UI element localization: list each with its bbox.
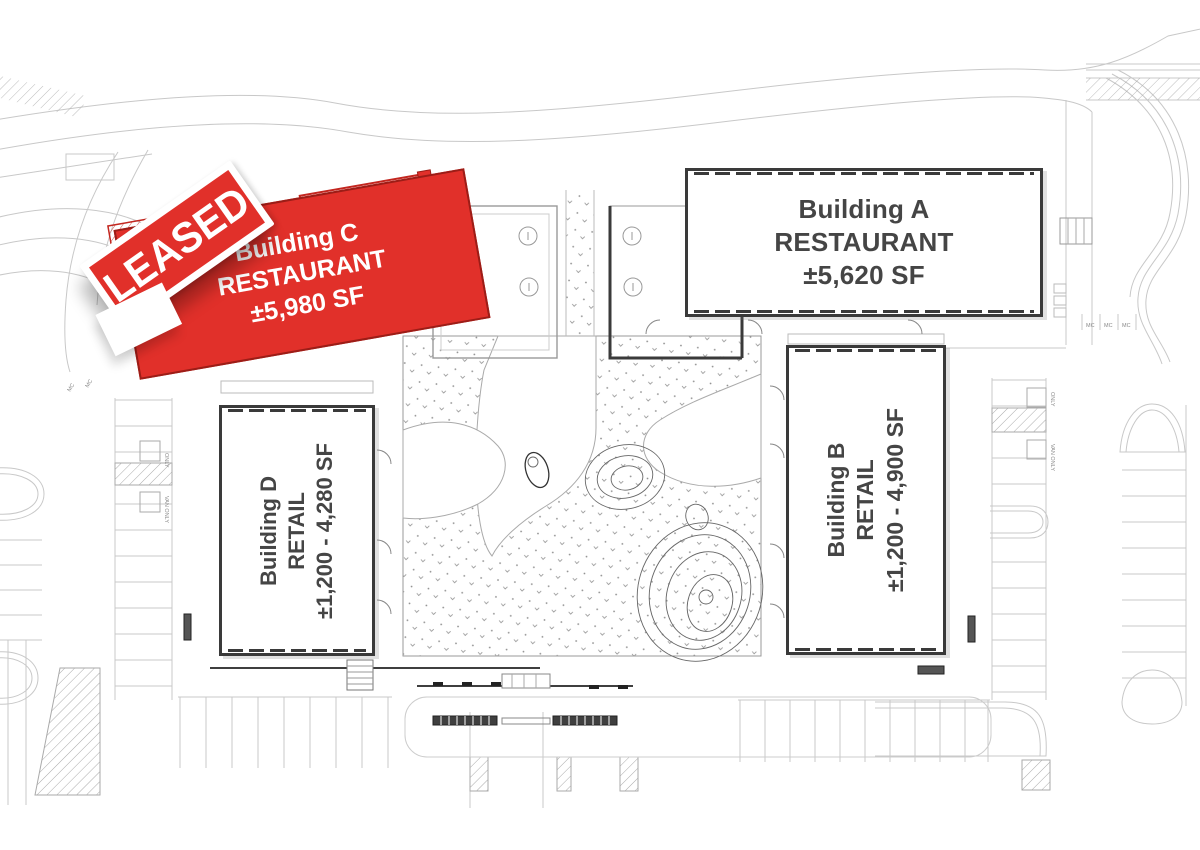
crosswalk-hatch-top-left xyxy=(0,76,86,118)
parking-column-right xyxy=(990,378,1048,700)
building-name: Building B xyxy=(822,408,851,592)
building-size: ±1,200 - 4,900 SF xyxy=(881,408,910,592)
building-a-label: Building A RESTAURANT ±5,620 SF xyxy=(774,193,953,293)
van-only-label: VAN ONLY xyxy=(163,496,169,523)
building-a-unit[interactable]: Building A RESTAURANT ±5,620 SF xyxy=(685,168,1043,317)
site-plan: MC MC MC MC MC ONLY VAN ONLY ONLY VAN ON… xyxy=(0,0,1200,850)
mc-label: MC xyxy=(1104,323,1113,329)
building-name: Building A xyxy=(774,193,953,226)
storefront-ticks xyxy=(795,648,937,651)
storefront-ticks xyxy=(694,172,1034,175)
mc-label: MC xyxy=(67,383,77,393)
building-use: RETAIL xyxy=(851,408,880,592)
storefront-ticks xyxy=(228,649,366,652)
storefront-ticks xyxy=(795,349,937,352)
only-label: ONLY xyxy=(1049,392,1055,407)
building-name: Building D xyxy=(255,443,283,619)
parking-bottom xyxy=(178,697,1046,808)
plaza xyxy=(403,336,761,656)
building-b-label: Building B RETAIL ±1,200 - 4,900 SF xyxy=(822,408,910,592)
building-size: ±1,200 - 4,280 SF xyxy=(311,443,339,619)
storefront-ticks xyxy=(228,409,366,412)
parking-column-left xyxy=(115,398,172,700)
mc-label: MC xyxy=(85,379,95,389)
building-use: RETAIL xyxy=(283,443,311,619)
storefront-ticks xyxy=(694,310,1034,313)
building-use: RESTAURANT xyxy=(774,226,953,259)
van-only-label: VAN ONLY xyxy=(1049,444,1055,471)
parking-left-edge xyxy=(0,468,44,805)
mc-label: MC xyxy=(1122,323,1131,329)
building-d-label: Building D RETAIL ±1,200 - 4,280 SF xyxy=(255,443,339,619)
mc-label: MC xyxy=(1086,323,1095,329)
only-label: ONLY xyxy=(163,453,169,468)
crosswalk-hatch-top-right xyxy=(1086,78,1200,100)
parking-column-far-right xyxy=(1120,404,1186,724)
site-plan-linework: MC MC MC MC MC ONLY VAN ONLY ONLY VAN ON… xyxy=(0,0,1200,850)
building-size: ±5,620 SF xyxy=(774,259,953,292)
building-d-unit[interactable]: Building D RETAIL ±1,200 - 4,280 SF xyxy=(219,405,375,656)
building-b-unit[interactable]: Building B RETAIL ±1,200 - 4,900 SF xyxy=(786,345,946,655)
